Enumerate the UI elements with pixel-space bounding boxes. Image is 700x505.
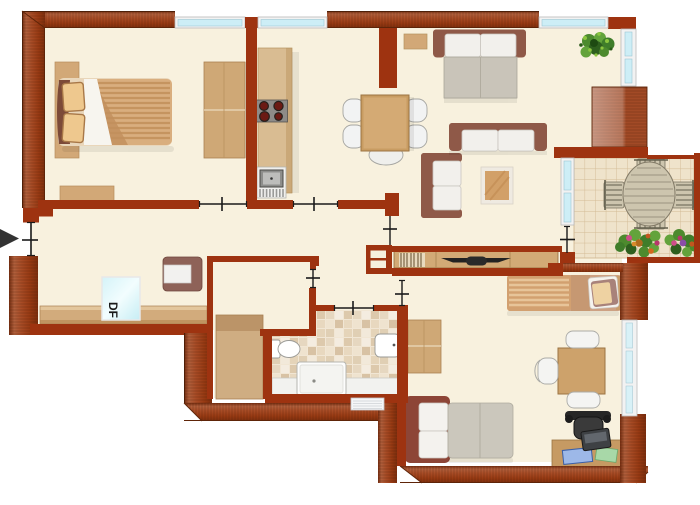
svg-text:DF: DF	[106, 302, 120, 318]
